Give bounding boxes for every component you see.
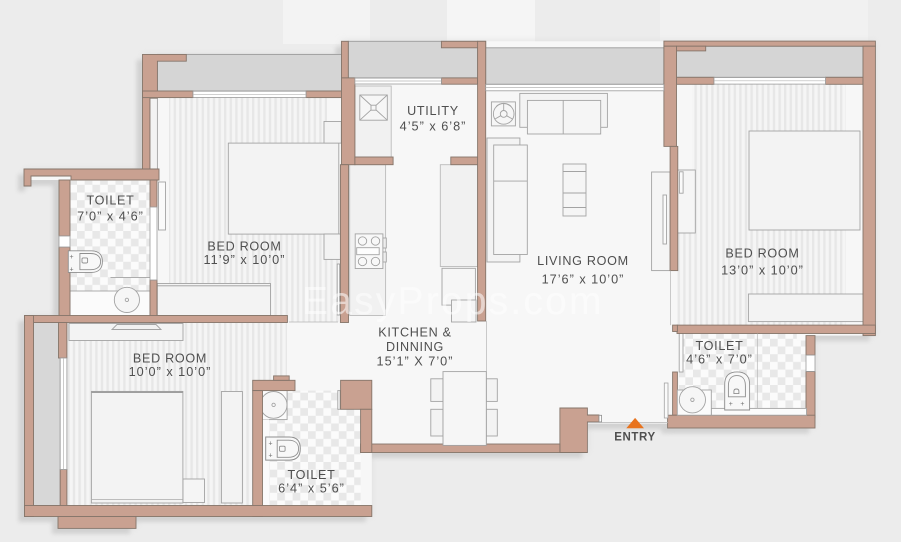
svg-text:DINNING: DINNING: [386, 340, 444, 354]
svg-text:ENTRY: ENTRY: [614, 432, 656, 444]
svg-text:BED ROOM: BED ROOM: [133, 352, 207, 366]
svg-text:TOILET: TOILET: [695, 339, 743, 353]
svg-text:6’4” x 5’6”: 6’4” x 5’6”: [278, 482, 345, 496]
svg-text:4’6” x 7’0”: 4’6” x 7’0”: [686, 353, 753, 367]
svg-text:4’5” x 6’8”: 4’5” x 6’8”: [400, 120, 467, 134]
svg-text:+: +: [70, 267, 74, 274]
svg-text:TOILET: TOILET: [86, 194, 134, 208]
svg-text:EasyProps.com: EasyProps.com: [302, 280, 604, 323]
svg-text:+: +: [740, 401, 744, 408]
svg-text:15’1” X 7’0”: 15’1” X 7’0”: [377, 355, 454, 369]
svg-text:KITCHEN &: KITCHEN &: [378, 326, 451, 340]
svg-text:7’0” x 4’6”: 7’0” x 4’6”: [77, 210, 144, 224]
svg-text:UTILITY: UTILITY: [407, 104, 459, 118]
svg-text:+: +: [269, 453, 273, 460]
svg-text:10’0” x 10’0”: 10’0” x 10’0”: [129, 365, 212, 379]
svg-text:+: +: [269, 441, 273, 448]
svg-text:13’0” x 10’0”: 13’0” x 10’0”: [721, 264, 804, 278]
svg-text:BED ROOM: BED ROOM: [207, 240, 281, 254]
svg-text:BED ROOM: BED ROOM: [725, 247, 799, 261]
svg-text:LIVING ROOM: LIVING ROOM: [537, 254, 629, 268]
svg-text:TOILET: TOILET: [287, 468, 335, 482]
svg-text:11’9” x 10’0”: 11’9” x 10’0”: [204, 253, 286, 267]
svg-text:+: +: [70, 254, 74, 261]
svg-text:+: +: [729, 401, 733, 408]
